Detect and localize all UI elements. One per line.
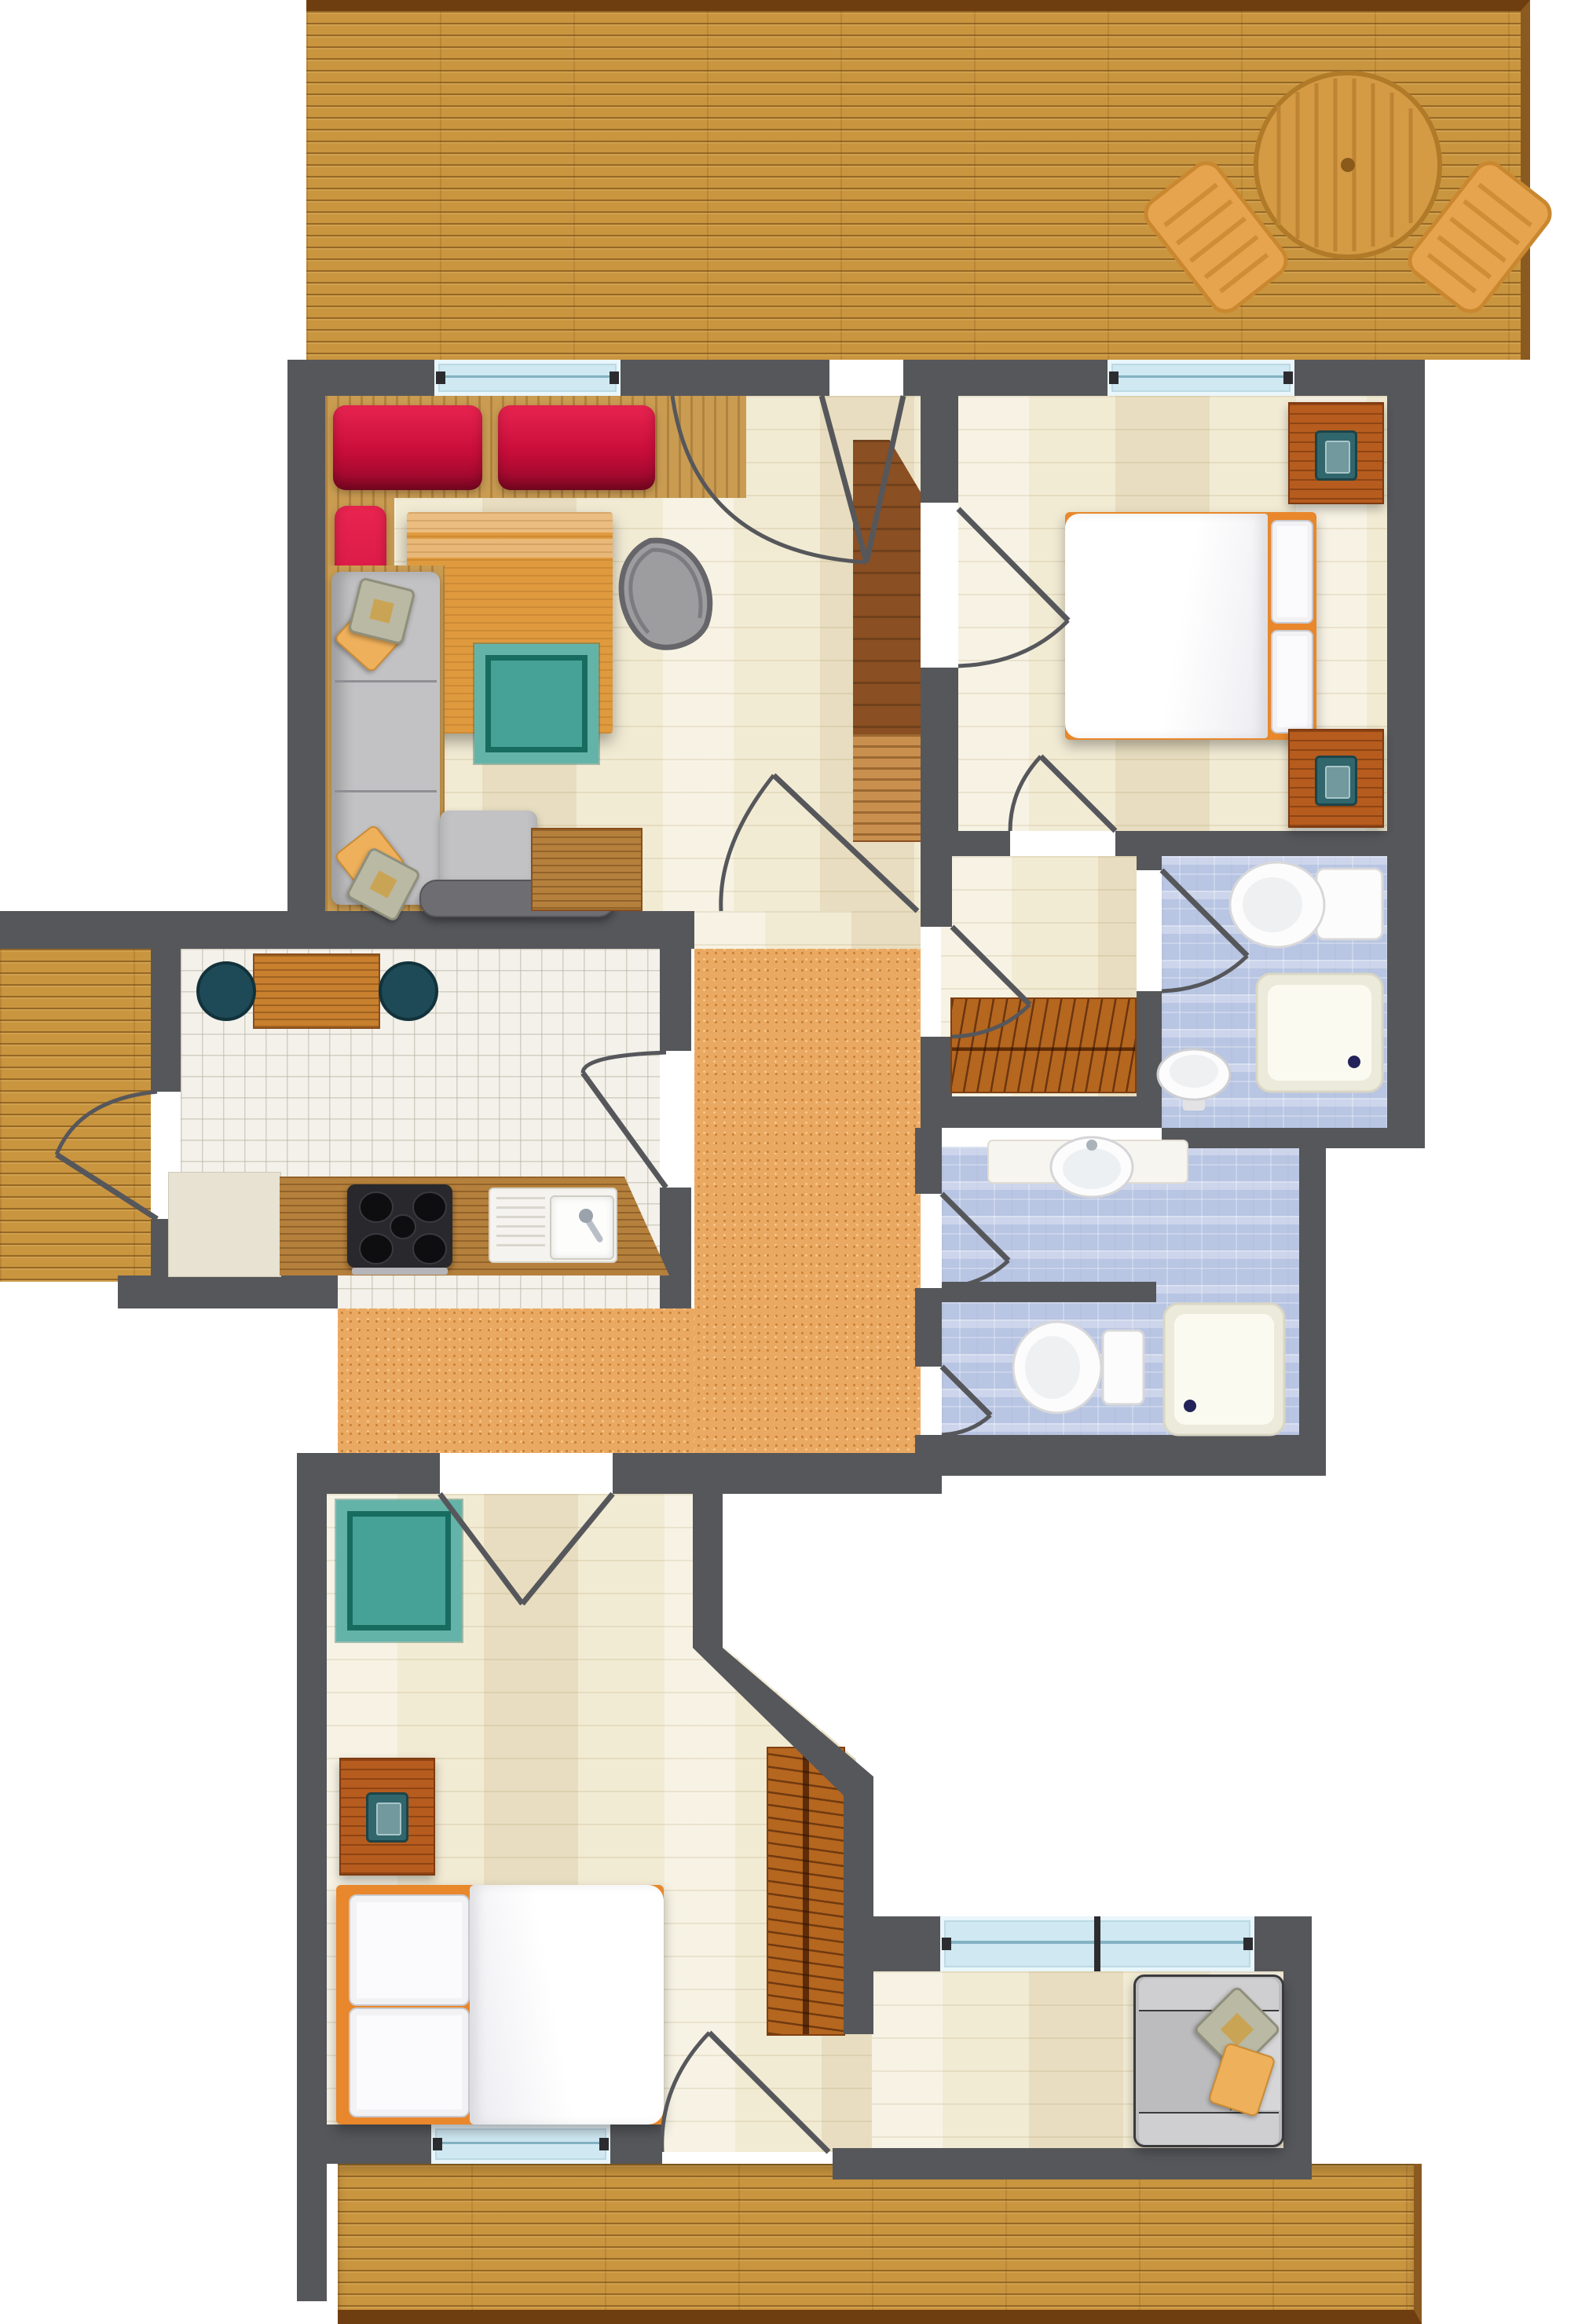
wall-segment	[915, 1288, 942, 1367]
wall-segment	[660, 949, 691, 1051]
wall-segment	[660, 1188, 691, 1308]
wall-segment	[287, 396, 325, 949]
sink-drainer	[496, 1197, 545, 1253]
sink-basin	[550, 1195, 614, 1260]
wall-segment	[1115, 831, 1387, 856]
wall-segment	[921, 856, 952, 927]
duvet	[470, 1885, 664, 2125]
hallway-floor-right-arm	[694, 949, 921, 1453]
wall-segment	[151, 949, 181, 1092]
red-sofa-cushion	[333, 405, 482, 490]
window-stop-icon	[1243, 1938, 1253, 1950]
floor-plan	[0, 0, 1578, 2324]
wardrobe-shelf	[853, 734, 921, 840]
window-stop-icon	[1283, 371, 1293, 384]
kitchen-sink-unit	[489, 1188, 617, 1263]
sofa-armrest	[1139, 2112, 1279, 2145]
wall-segment	[1283, 1971, 1312, 2177]
wall-segment	[621, 360, 829, 396]
wall-segment	[844, 1916, 940, 1971]
window-lounge	[940, 1916, 1254, 1971]
wall-segment	[297, 2125, 431, 2164]
double-bed-top	[1065, 512, 1316, 740]
stove	[347, 1184, 452, 1268]
base-cabinet	[168, 1172, 281, 1277]
table-lamp	[366, 1792, 408, 1843]
window-stop-icon	[1109, 371, 1119, 384]
dining-table	[253, 953, 380, 1029]
hatched-closet	[950, 997, 1137, 1093]
bottom-terrace	[338, 2164, 1422, 2324]
bed-pillow	[349, 2007, 470, 2117]
rug-inner	[347, 1511, 451, 1630]
wall-segment	[1299, 1147, 1326, 1476]
wall-segment	[942, 1282, 1156, 1302]
wall-segment	[921, 831, 1010, 856]
wall-segment	[921, 396, 958, 503]
window-bedroom-top	[1108, 360, 1294, 396]
table-lamp	[1315, 756, 1357, 806]
window-bedroom-bottom	[431, 2125, 610, 2164]
stove-handle	[352, 1268, 448, 1275]
wall-segment	[118, 1275, 338, 1308]
wall-segment	[287, 360, 434, 396]
wall-segment	[1137, 856, 1162, 870]
wall-segment	[833, 2148, 1312, 2179]
window-stop-icon	[433, 2138, 442, 2150]
teal-rug-living	[474, 644, 599, 763]
hanger-wardrobe	[767, 1747, 845, 2036]
wall-segment	[613, 1453, 942, 1494]
top-terrace	[306, 0, 1530, 360]
wall-segment	[915, 1435, 1326, 1476]
sofa-cushion-line	[335, 680, 437, 683]
window-living	[434, 360, 621, 396]
wall-segment	[693, 1494, 723, 1648]
wall-segment	[1387, 396, 1425, 1147]
window-divider	[1094, 1916, 1100, 1971]
wall-segment	[610, 2125, 662, 2164]
hallway-floor-bottom	[338, 1308, 694, 1453]
wall-segment	[1162, 1128, 1425, 1148]
wall-segment	[921, 668, 958, 831]
wall-segment	[921, 1096, 1162, 1128]
window-stop-icon	[610, 371, 619, 384]
bed-pillow	[1271, 520, 1313, 624]
wall-segment	[915, 1128, 942, 1194]
side-table	[531, 828, 643, 911]
double-bed-bottom	[336, 1885, 664, 2125]
bed-pillow	[349, 1894, 470, 2006]
window-stop-icon	[599, 2138, 609, 2150]
red-sofa-cushion	[498, 405, 655, 490]
sofa-cushion-line	[335, 790, 437, 792]
wall-segment	[921, 1037, 952, 1096]
living-room-threshold	[694, 911, 921, 949]
rug-inner	[485, 655, 588, 752]
bed-pillow	[1271, 630, 1313, 734]
left-balcony	[0, 949, 151, 1282]
wall-segment	[903, 360, 1108, 396]
teal-rug-bedroom	[336, 1500, 462, 1641]
window-stop-icon	[436, 371, 445, 384]
wall-segment	[297, 1453, 327, 2301]
bathroom-top-floor	[1162, 856, 1387, 1128]
table-lamp	[1315, 430, 1357, 481]
wall-segment	[1254, 1916, 1312, 1971]
duvet	[1065, 514, 1268, 738]
window-stop-icon	[942, 1938, 951, 1950]
wall-segment	[1294, 360, 1425, 396]
wall-segment	[1137, 991, 1162, 1096]
